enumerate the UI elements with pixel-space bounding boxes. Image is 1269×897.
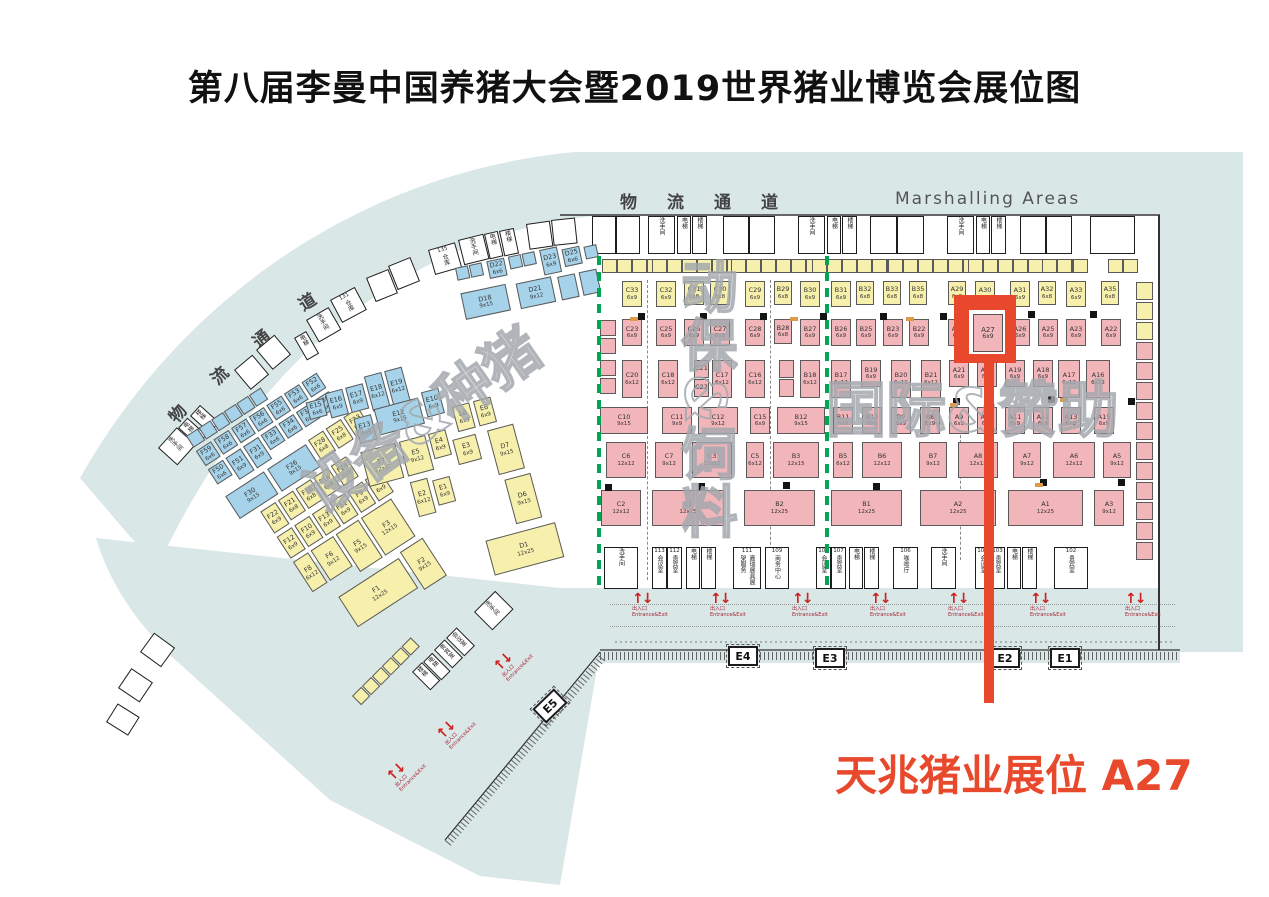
room-电梯: 电梯	[827, 216, 841, 254]
booth	[857, 259, 872, 273]
pillar	[880, 313, 887, 320]
room-电梯: 电梯	[686, 547, 700, 589]
room-楼梯: 楼梯	[692, 216, 707, 254]
booth	[872, 259, 887, 273]
booth-B31: B316x9	[831, 281, 851, 307]
booth	[522, 251, 537, 266]
room-电梯: 电梯	[849, 547, 863, 589]
booth-C20: C206x12	[622, 360, 642, 398]
room-会议室: 113会议室	[652, 547, 667, 589]
room-电梯: 电梯	[1007, 547, 1021, 589]
room-洗手间: 洗手间	[931, 547, 956, 589]
booth	[617, 259, 632, 273]
booth-C16: C166x12	[745, 360, 765, 398]
booth-B25: B256x9	[856, 319, 876, 346]
gate-E2: E2	[990, 648, 1020, 668]
room-咖啡厅: 106咖啡厅	[893, 547, 918, 589]
pillar	[605, 484, 612, 491]
room-商务中心: 109商务中心	[765, 547, 789, 589]
pillar	[1028, 311, 1035, 318]
booth	[1136, 362, 1153, 380]
hall-gridline	[770, 280, 771, 580]
booth-B32: B326x8	[856, 281, 874, 305]
corridor-top-label: 物流通道	[620, 188, 808, 213]
pillar	[760, 313, 767, 320]
booth	[968, 259, 983, 273]
entrance-label-en: Entrance&Exit	[632, 612, 668, 618]
booth-B26: B266x9	[831, 319, 851, 346]
booth	[557, 273, 580, 300]
booth-B2: B212x25	[744, 490, 815, 526]
booth	[842, 259, 857, 273]
entrance-arrows-icon: ↑↓	[632, 592, 668, 606]
booth-B30: B306x9	[800, 281, 820, 307]
gate-E1: E1	[1050, 648, 1080, 668]
room	[723, 216, 749, 254]
pillar	[1128, 398, 1135, 405]
booth	[827, 259, 842, 273]
booth	[903, 259, 918, 273]
booth-D6: D69x15	[504, 473, 542, 524]
booth	[1073, 259, 1088, 273]
room-楼梯: 楼梯	[991, 216, 1006, 254]
booth	[1028, 259, 1043, 273]
booth	[779, 360, 794, 378]
door-marker	[1035, 483, 1043, 487]
entrance: ↑↓出入口Entrance&Exit	[870, 592, 906, 618]
booth-C33: C336x9	[622, 281, 642, 307]
booth-A22: A226x9	[1101, 319, 1121, 346]
booth-D7: D79x15	[487, 424, 525, 475]
booth-F1: F112x25	[338, 558, 418, 627]
booth-B18: B186x12	[800, 360, 820, 398]
entrance: ↑↓出入口Entrance&Exit	[710, 592, 746, 618]
room-贵宾室: 107贵宾室	[831, 547, 846, 589]
room-贵宾室: 112贵宾室	[667, 547, 682, 589]
page-title: 第八届李曼中国养猪大会暨2019世界猪业博览会展位图	[0, 60, 1269, 111]
booth-A27-size: 6x9	[982, 334, 993, 341]
room	[616, 216, 640, 254]
booth	[469, 262, 484, 277]
booth-A3: A39x12	[1094, 490, 1124, 526]
booth-B1: B112x25	[831, 490, 902, 526]
booth-B33: B336x8	[883, 281, 901, 305]
promenade-dots	[610, 626, 1175, 627]
room	[870, 216, 897, 254]
booth-A27-highlighted: A27 6x9	[973, 314, 1003, 352]
booth-A32: A326x8	[1038, 281, 1056, 305]
gate-E3: E3	[815, 648, 845, 668]
booth	[746, 259, 761, 273]
booth	[933, 259, 948, 273]
entrance-arrows-icon: ↑↓	[870, 592, 906, 606]
room-洗手间: 洗手间	[947, 216, 974, 254]
room	[897, 216, 924, 254]
booth	[508, 254, 523, 269]
entrance-arrows-icon: ↑↓	[792, 592, 828, 606]
exhibition-floor-plan: 第八届李曼中国养猪大会暨2019世界猪业博览会展位图 物流通道 Marshall…	[0, 0, 1269, 897]
pillar	[940, 313, 947, 320]
entrance-arrows-icon: ↑↓	[948, 592, 984, 606]
booth	[1136, 502, 1153, 520]
entrance-label-en: Entrance&Exit	[948, 612, 984, 618]
booth	[1136, 342, 1153, 360]
entrance: ↑↓出入口Entrance&Exit	[948, 592, 984, 618]
entrance-arrows-icon: ↑↓	[1030, 592, 1066, 606]
pillar	[1118, 479, 1125, 486]
entrance: ↑↓出入口Entrance&Exit	[792, 592, 828, 618]
booth	[918, 259, 933, 273]
pillar	[638, 313, 645, 320]
entrance-label-en: Entrance&Exit	[1125, 612, 1161, 618]
marshalling-areas-label: Marshalling Areas	[895, 189, 1080, 209]
booth-D25: D256x6	[561, 246, 582, 267]
booth-D22: D226x6	[486, 258, 507, 279]
booth-D23: D236x9	[539, 246, 562, 275]
entrance-label-en: Entrance&Exit	[792, 612, 828, 618]
booth	[600, 378, 616, 394]
booth-D21: D219x12	[516, 276, 557, 309]
room	[1046, 216, 1072, 254]
booth	[888, 259, 903, 273]
room-洗手间: 洗手间	[798, 216, 825, 254]
room-嘉瑞展具展架服务: 111嘉瑞展具展架服务	[733, 547, 761, 589]
entrance-arrows-icon: ↑↓	[1125, 592, 1161, 606]
gate-E4: E4	[728, 646, 758, 666]
booth-C15: C156x9	[750, 407, 770, 434]
booth	[1136, 302, 1153, 320]
booth	[1057, 259, 1072, 273]
booth-B35: B356x8	[909, 281, 927, 305]
room-楼梯: 楼梯	[701, 547, 716, 589]
room-楼梯: 楼梯	[1022, 547, 1037, 589]
booth-C10: C109x15	[600, 407, 648, 434]
booth	[1136, 542, 1153, 560]
watermark-right: 国际&赞助	[826, 362, 1118, 449]
booth	[600, 338, 616, 354]
booth-A23: A236x9	[1066, 319, 1086, 346]
entrance: ↑↓出入口Entrance&Exit	[632, 592, 668, 618]
room-洗手间: 洗手间	[604, 547, 638, 589]
entrance-label-en: Entrance&Exit	[1030, 612, 1066, 618]
pillar	[783, 482, 790, 489]
booth	[761, 259, 776, 273]
room-贵宾室: 102贵宾室	[1054, 547, 1088, 589]
door-marker	[630, 317, 638, 321]
watermark-center: 动保&饲料	[664, 258, 745, 541]
green-divider-left	[597, 256, 601, 588]
booth-A35: A356x8	[1101, 281, 1119, 305]
booth	[1136, 322, 1153, 340]
booth-C6: C612x12	[606, 442, 646, 478]
room	[551, 217, 578, 245]
pillar	[873, 483, 880, 490]
room-电梯: 电梯	[677, 216, 691, 254]
booth	[1136, 282, 1153, 300]
booth-E16: E166x9	[325, 389, 349, 419]
booth-B28: B286x8	[774, 319, 792, 344]
booth-C23: C236x9	[622, 319, 642, 346]
booth-A25: A256x9	[1038, 319, 1058, 346]
entrance: ↑↓出入口Entrance&Exit	[1030, 592, 1066, 618]
booth	[1042, 259, 1057, 273]
booth	[1136, 522, 1153, 540]
booth-C2: C212x12	[601, 490, 641, 526]
booth	[948, 259, 963, 273]
booth	[1136, 442, 1153, 460]
booth-C29: C296x9	[745, 281, 765, 307]
booth	[1013, 259, 1028, 273]
booth-B29: B296x8	[774, 281, 792, 305]
booth	[1108, 259, 1123, 273]
booth-B12: B129x15	[777, 407, 825, 434]
booth	[600, 360, 616, 376]
booth-D1: D112x25	[485, 522, 564, 575]
room-洗手间: 洗手间	[648, 216, 675, 254]
booth	[602, 259, 617, 273]
room-楼梯: 楼梯	[842, 216, 857, 254]
door-marker	[790, 317, 798, 321]
booth	[1136, 482, 1153, 500]
booth-B3: B312x15	[773, 442, 819, 478]
booth	[600, 320, 616, 336]
booth-E1: E16x9	[432, 476, 456, 506]
room	[1090, 216, 1135, 254]
room	[526, 221, 553, 250]
booth	[1136, 462, 1153, 480]
pillar	[1090, 311, 1097, 318]
entrance: ↑↓出入口Entrance&Exit	[1125, 592, 1161, 618]
booth-C5: C56x12	[746, 442, 764, 478]
room-电梯: 电梯	[976, 216, 990, 254]
booth-A1: A112x25	[1008, 490, 1083, 526]
highlight-caption: 天兆猪业展位 A27	[835, 742, 1193, 803]
booth	[455, 265, 470, 280]
booth-C28: C286x9	[745, 319, 765, 346]
highlight-pointer-line	[984, 363, 994, 703]
door-marker	[906, 317, 914, 321]
booth	[983, 259, 998, 273]
booth	[1123, 259, 1138, 273]
entrance-label-en: Entrance&Exit	[870, 612, 906, 618]
booth-B22: B226x9	[909, 319, 929, 346]
booth	[779, 379, 794, 397]
room	[1020, 216, 1046, 254]
booth	[791, 259, 806, 273]
room-楼梯: 楼梯	[864, 547, 879, 589]
booth	[1136, 402, 1153, 420]
booth	[632, 259, 647, 273]
booth	[998, 259, 1013, 273]
booth	[1136, 422, 1153, 440]
booth	[1136, 382, 1153, 400]
room	[749, 216, 775, 254]
entrance-label-en: Entrance&Exit	[710, 612, 746, 618]
booth-B27: B276x9	[800, 319, 820, 346]
booth-B23: B236x9	[883, 319, 903, 346]
booth	[776, 259, 791, 273]
entrance-arrows-icon: ↑↓	[710, 592, 746, 606]
booth-A33: A336x9	[1066, 281, 1086, 307]
